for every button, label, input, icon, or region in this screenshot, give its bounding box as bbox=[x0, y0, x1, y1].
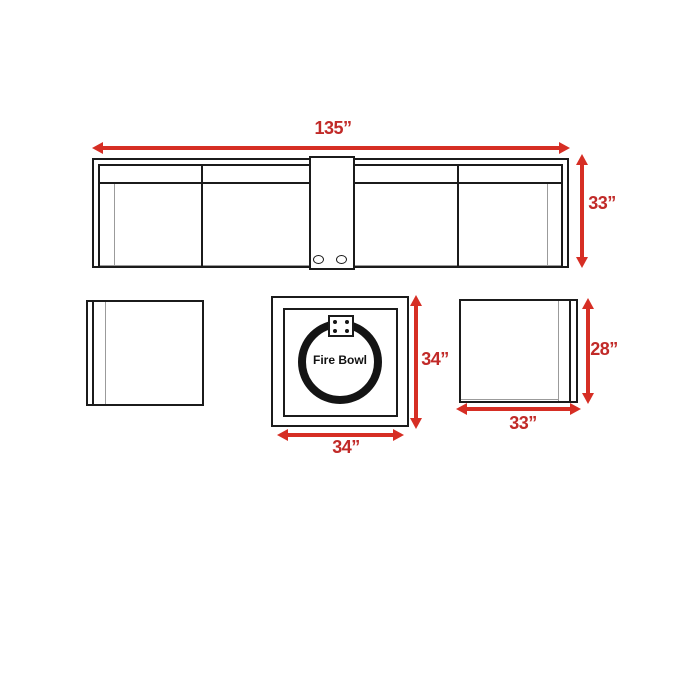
fire-bowl-label: Fire Bowl bbox=[300, 353, 380, 367]
sofa-width-dimension-arrow bbox=[92, 142, 570, 154]
cup-holder-icon bbox=[313, 255, 324, 264]
burner-icon bbox=[328, 315, 354, 337]
chair-width-label: 33” bbox=[493, 414, 553, 434]
burner-dot-icon bbox=[333, 329, 337, 333]
right-chair-outline bbox=[459, 299, 578, 403]
sofa-center-console bbox=[309, 156, 355, 270]
left-chair-outline bbox=[86, 300, 204, 406]
table-depth-label: 34” bbox=[405, 350, 465, 370]
arrowhead-down-icon bbox=[410, 418, 422, 429]
arrowhead-down-icon bbox=[576, 257, 588, 268]
arrowhead-right-icon bbox=[393, 429, 404, 441]
right-chair-seat-line bbox=[461, 399, 558, 400]
dimension-diagram: 135” 33” Fire Bowl 34” 34” 28” bbox=[0, 0, 700, 700]
sofa-left-armrest-line bbox=[114, 184, 115, 266]
right-chair-armrest-line bbox=[569, 301, 571, 401]
burner-dot-icon bbox=[345, 329, 349, 333]
chair-depth-label: 28” bbox=[574, 340, 634, 360]
burner-dot-icon bbox=[345, 320, 349, 324]
arrowhead-right-icon bbox=[570, 403, 581, 415]
left-chair-armrest-line bbox=[92, 302, 94, 404]
left-chair-cushion-line bbox=[105, 302, 106, 404]
arrowhead-down-icon bbox=[582, 393, 594, 404]
sofa-seat-divider-left bbox=[201, 164, 203, 266]
sofa-depth-label: 33” bbox=[572, 194, 632, 214]
arrowhead-right-icon bbox=[559, 142, 570, 154]
sofa-right-armrest-line bbox=[547, 184, 548, 266]
right-chair-cushion-line bbox=[558, 301, 559, 401]
sofa-seat-divider-right bbox=[457, 164, 459, 266]
sofa-width-label: 135” bbox=[303, 119, 363, 139]
table-width-label: 34” bbox=[316, 438, 376, 458]
cup-holder-icon bbox=[336, 255, 347, 264]
burner-dot-icon bbox=[333, 320, 337, 324]
